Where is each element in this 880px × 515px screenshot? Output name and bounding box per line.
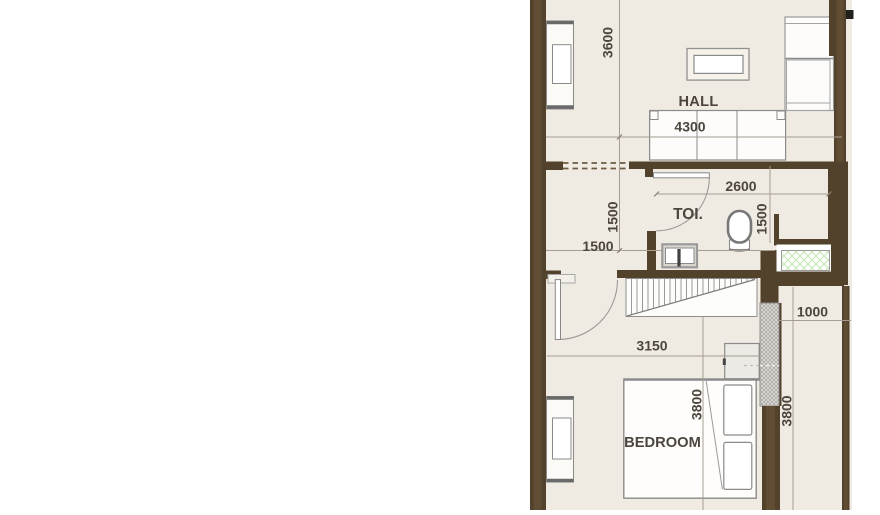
svg-text:4300: 4300: [674, 119, 705, 135]
svg-text:1500: 1500: [605, 201, 621, 232]
svg-text:TOI.: TOI.: [673, 206, 703, 223]
svg-text:3600: 3600: [600, 27, 616, 58]
svg-text:3800: 3800: [689, 389, 705, 420]
svg-text:HALL: HALL: [678, 94, 718, 110]
svg-text:1000: 1000: [797, 304, 828, 320]
svg-text:3800: 3800: [779, 395, 795, 426]
svg-text:1500: 1500: [754, 203, 770, 234]
svg-text:1500: 1500: [582, 238, 613, 254]
svg-text:BEDROOM: BEDROOM: [624, 435, 701, 451]
svg-text:2600: 2600: [725, 178, 756, 194]
svg-text:3150: 3150: [636, 338, 667, 354]
